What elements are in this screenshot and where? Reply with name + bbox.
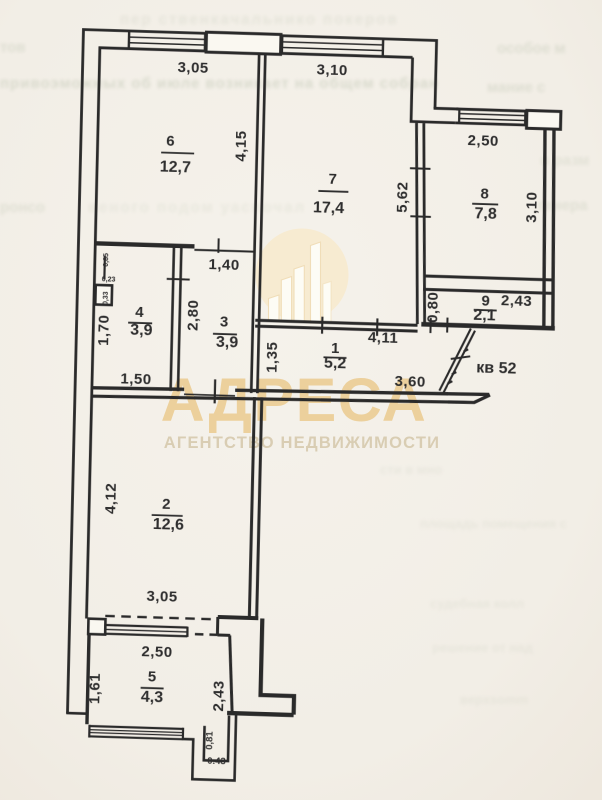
svg-text:площадь помещения с: площадь помещения с [420,516,567,531]
svg-text:пер ственкачальнико покеров: пер ственкачальнико покеров [120,11,399,28]
svg-text:ронсо: ронсо [0,199,45,216]
svg-text:тов: тов [0,39,26,56]
svg-text:0,33: 0,33 [102,291,109,305]
svg-text:12,6: 12,6 [153,516,185,534]
svg-text:2,80: 2,80 [184,299,202,331]
svg-text:1,61: 1,61 [86,673,104,705]
svg-text:4,12: 4,12 [102,482,120,514]
svg-text:в разм: в разм [540,152,589,169]
svg-text:5,2: 5,2 [324,355,347,373]
svg-text:7: 7 [328,171,337,188]
svg-text:5,62: 5,62 [394,181,412,213]
svg-text:1,50: 1,50 [120,370,152,388]
svg-text:3,60: 3,60 [394,373,426,391]
svg-text:веного подом уаспочал: веного подом уаспочал [88,199,306,216]
svg-text:2,50: 2,50 [141,643,173,661]
svg-text:4: 4 [135,304,144,321]
svg-text:12,7: 12,7 [160,159,192,177]
svg-text:3,05: 3,05 [146,588,178,606]
svg-text:1,70: 1,70 [95,314,113,346]
svg-text:4,15: 4,15 [233,130,251,162]
svg-text:0.43: 0.43 [207,756,226,768]
svg-text:7,8: 7,8 [474,205,497,223]
svg-text:особое м: особое м [497,40,566,57]
svg-text:3,05: 3,05 [177,59,209,77]
svg-text:сти в мно: сти в мно [380,462,442,477]
svg-text:0,81: 0,81 [204,730,215,750]
svg-text:2: 2 [162,496,171,513]
svg-text:кв 52: кв 52 [476,359,517,377]
svg-text:4,11: 4,11 [368,329,399,347]
svg-text:мание с: мание с [487,79,545,96]
svg-text:2,1: 2,1 [473,307,496,325]
svg-text:0,23: 0,23 [102,276,116,283]
svg-text:1,40: 1,40 [208,256,240,274]
svg-text:3: 3 [220,313,229,330]
svg-text:4,3: 4,3 [141,689,164,707]
svg-text:17,4: 17,4 [313,199,345,217]
svg-text:0,80: 0,80 [424,291,442,323]
svg-text:АГЕНТСТВО НЕДВИЖИМОСТИ: АГЕНТСТВО НЕДВИЖИМОСТИ [164,434,440,452]
svg-text:2,43: 2,43 [501,292,533,310]
svg-text:3,10: 3,10 [316,61,348,79]
svg-text:8: 8 [480,185,489,202]
svg-text:2,50: 2,50 [467,132,499,150]
svg-text:3,9: 3,9 [130,322,153,340]
svg-text:5: 5 [148,669,157,686]
svg-text:3,9: 3,9 [216,334,239,352]
svg-text:судебная колл: судебная колл [430,596,524,611]
svg-text:3,10: 3,10 [523,191,541,223]
svg-text:1,35: 1,35 [263,341,281,373]
svg-text:2,43: 2,43 [210,680,228,712]
svg-text:0,85: 0,85 [103,253,110,267]
svg-text:решение от над: решение от над [432,640,534,655]
svg-text:привоэможных об июле возникает: привоэможных об июле возникает на общем … [0,75,439,92]
svg-text:верхsomm: верхsomm [460,692,528,707]
svg-text:6: 6 [166,133,175,150]
